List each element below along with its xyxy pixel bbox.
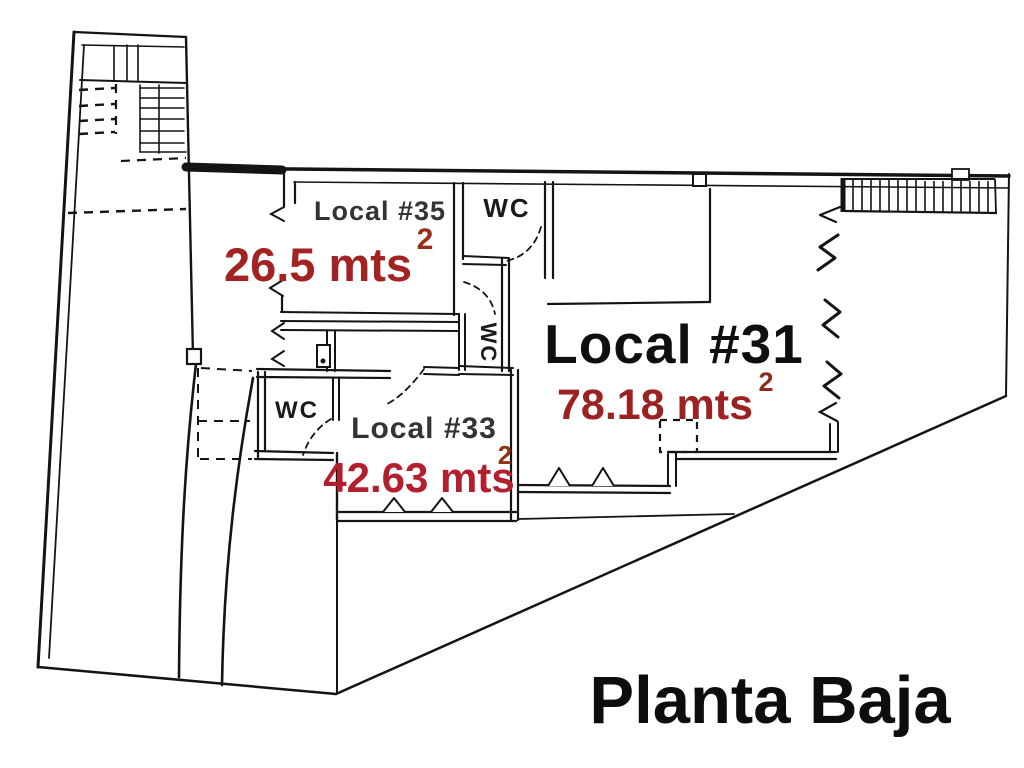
curved-walls [179, 364, 253, 685]
local35-bottom-wall [281, 312, 459, 331]
hatch-lines [853, 180, 988, 213]
wall-local35-wc [454, 183, 463, 315]
bottom-left-wall [38, 667, 336, 694]
wc-top-door-arc [506, 227, 541, 261]
stair-block-right-wall [186, 37, 193, 356]
wc-top-right-wall [545, 182, 553, 278]
room-area-local35: 26.5 mts [224, 238, 412, 291]
top-wall-outer [186, 168, 1009, 176]
local31-wall-end-jog [830, 422, 838, 452]
corridor-fixture-box [317, 345, 330, 367]
floorplan-page: Local #35 26.5 mts 2 WC Local #31 78.18 … [0, 0, 1024, 768]
hatch-band [843, 178, 997, 213]
hatch-band-right-cap [995, 179, 996, 213]
room-area-sup-local35: 2 [417, 223, 434, 256]
local31-step-up [668, 452, 676, 486]
wc-middle-right-wall [502, 259, 509, 371]
wc-middle-door-arc [464, 282, 495, 314]
room-name-local35: Local #35 [314, 196, 446, 226]
wc33-door-arc [303, 419, 331, 455]
break-zigzag-2 [823, 300, 840, 337]
room-area-local33: 42.63 mts [323, 454, 514, 501]
corridor-bottom-wall-left [257, 369, 390, 378]
corridor-right-jamb [459, 314, 465, 370]
corridor-bottom-wall-right [424, 367, 459, 375]
local33-bottom-wall [337, 512, 516, 521]
corridor-fixture-dot [321, 359, 326, 364]
local31-wall-end-chevron [820, 403, 837, 421]
right-wall [1006, 174, 1009, 396]
stair-landing-dividers [114, 45, 138, 81]
wc33-left-wall [258, 372, 265, 457]
room-area-sup-local31: 2 [758, 367, 773, 397]
stair-landing-bottom [80, 80, 187, 83]
room-name-local33: Local #33 [351, 412, 497, 445]
wc-label-middle: WC [476, 323, 501, 364]
break-zigzag-3 [824, 362, 841, 398]
stair-treads [140, 88, 184, 143]
break-chevron-top [820, 207, 840, 222]
local35-entry-chevron [271, 207, 284, 221]
curved-wall-1 [179, 364, 196, 677]
left-inner-wall [49, 45, 84, 658]
local35-entry-jamb [284, 172, 295, 207]
room-area-sup-local33: 2 [498, 440, 512, 470]
floor-title: Planta Baja [589, 663, 951, 738]
hidden-steps [79, 88, 115, 134]
rect-room-bottom [548, 302, 710, 304]
floorplan-drawing: Local #35 26.5 mts 2 WC Local #31 78.18 … [0, 0, 1024, 768]
curve-top-post [187, 349, 201, 364]
top-wall-thick-segment [186, 167, 282, 170]
local31-bottom-wall-right [668, 452, 836, 459]
local33-entry-arc [385, 369, 424, 405]
wall-break-marks [818, 207, 841, 398]
curved-wall-2 [222, 378, 253, 685]
hidden-line-under-stairs [121, 158, 186, 161]
wc-label-local33: WC [275, 397, 319, 424]
hidden-line-corridor [68, 209, 186, 213]
staircase [74, 32, 193, 356]
stair-block-top [74, 32, 186, 37]
hidden-box-curve-area [198, 368, 252, 459]
room-name-local31: Local #31 [544, 313, 804, 375]
room-area-local31: 78.18 mts [557, 381, 753, 429]
door-hinge-square [693, 174, 706, 186]
wc-label-top: WC [483, 193, 530, 223]
top-wall-inner [294, 182, 1009, 188]
wc33-right-wall [333, 378, 339, 420]
hatch-band-bottom [845, 211, 997, 213]
wc33-bottom-wall [255, 451, 333, 460]
break-zigzag-1 [818, 235, 838, 270]
left-outer-wall [38, 32, 74, 667]
local31-door-triangle-1 [548, 468, 570, 486]
labels: Local #35 26.5 mts 2 WC Local #31 78.18 … [224, 193, 951, 738]
wc-middle-bottom-wall [459, 366, 513, 375]
sidewalk-line [519, 514, 734, 519]
local31-bottom-wall [518, 485, 670, 493]
local31-door-triangle-2 [592, 468, 614, 486]
stair-block-top-inner [82, 45, 184, 47]
